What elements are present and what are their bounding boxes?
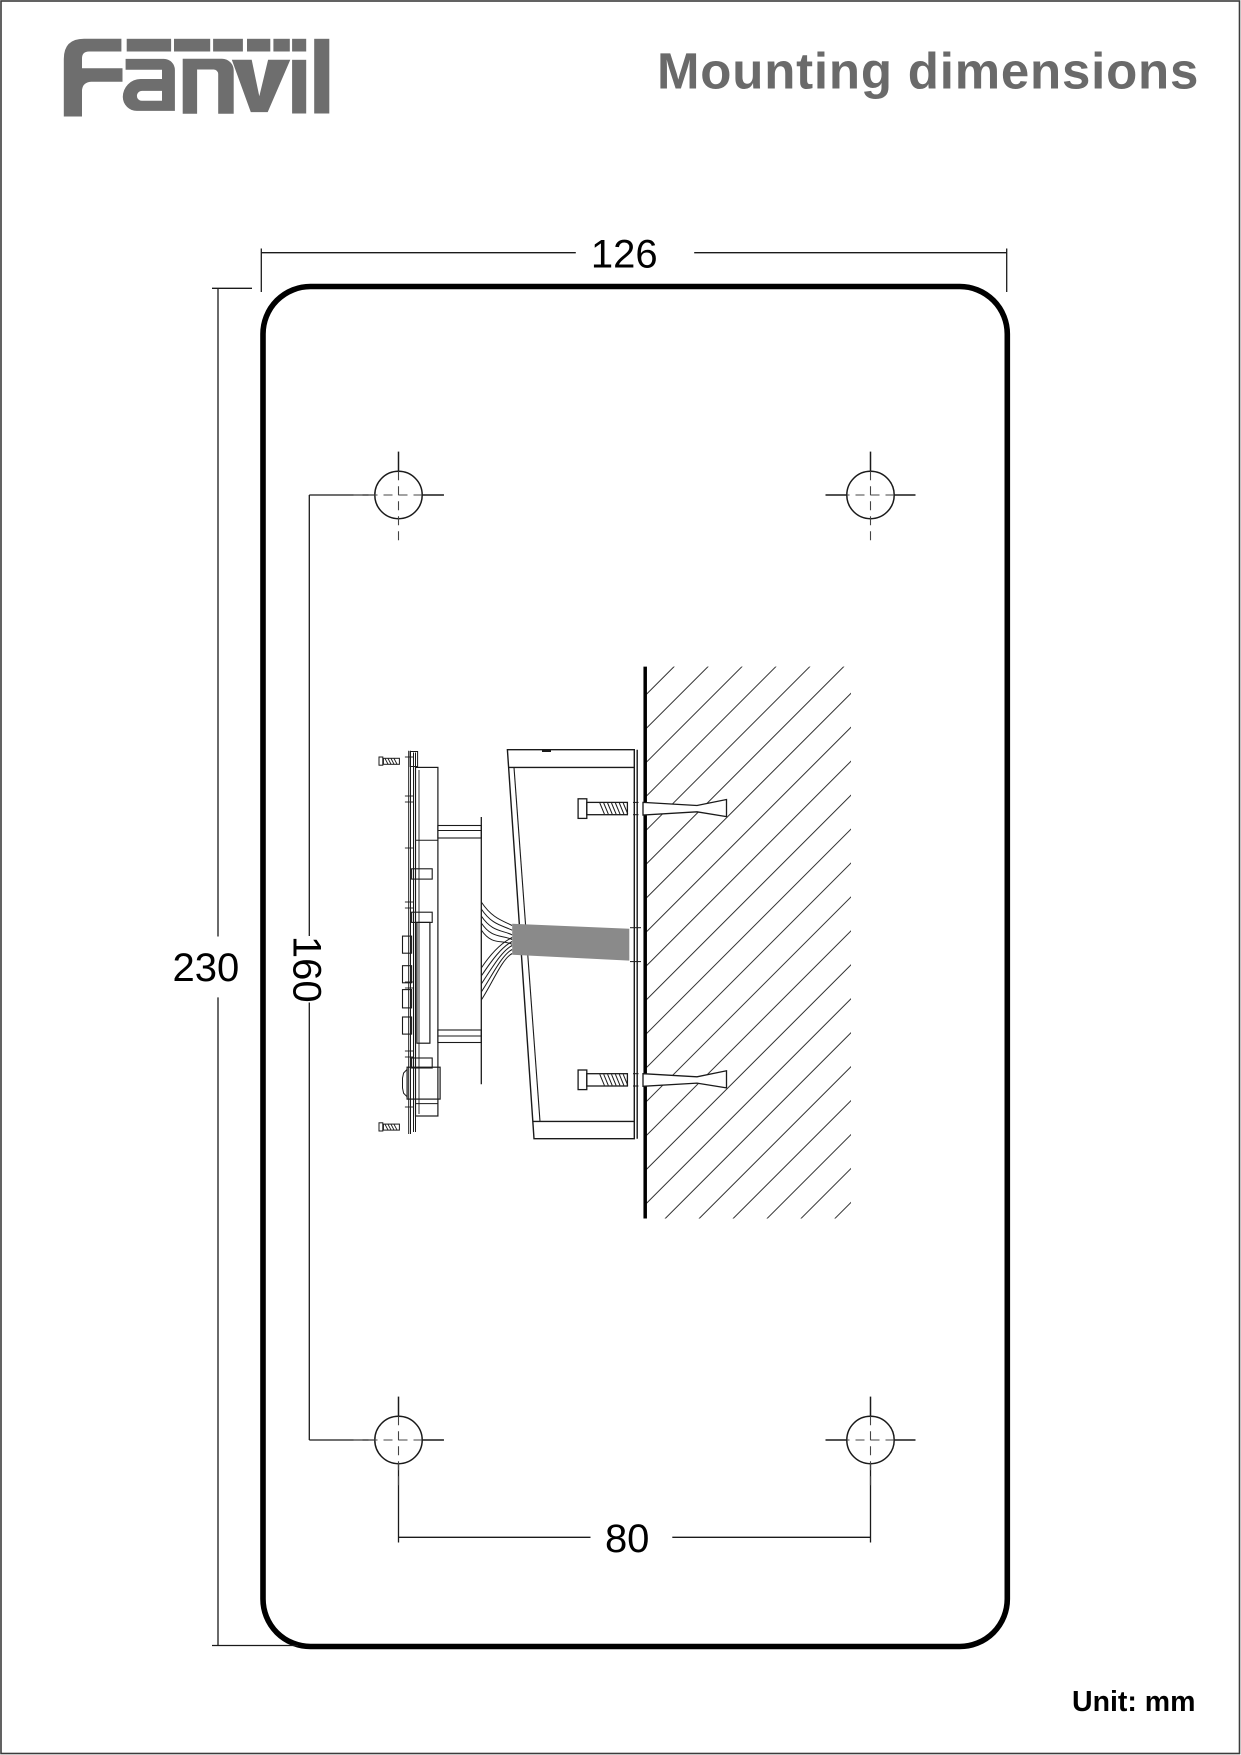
svg-text:80: 80	[605, 1517, 650, 1561]
svg-text:Unit: mm: Unit: mm	[1072, 1686, 1196, 1718]
svg-text:160: 160	[284, 936, 328, 1003]
svg-text:Mounting dimensions: Mounting dimensions	[657, 43, 1199, 100]
svg-text:126: 126	[591, 233, 658, 277]
svg-text:230: 230	[173, 946, 240, 990]
